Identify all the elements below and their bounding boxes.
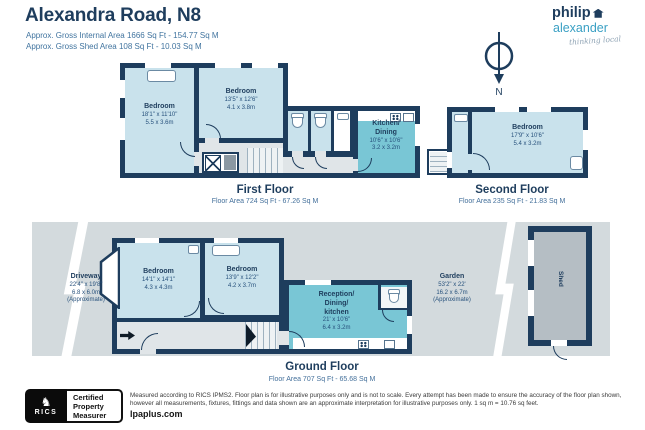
toilet-icon xyxy=(292,117,303,128)
room-label-ground-bedroom1: Bedroom 14'1" x 14'1" 4.3 x 4.3m xyxy=(117,268,200,292)
rics-badge-line: Property xyxy=(73,402,121,411)
subtitle-shed-area: Approx. Gross Shed Area 108 Sq Ft - 10.0… xyxy=(26,42,202,51)
ground-floor-area: Floor Area 707 Sq Ft - 65.68 Sq M xyxy=(227,376,417,383)
window-gap xyxy=(252,63,278,68)
room-name: Dining/ xyxy=(289,300,384,309)
room-dims-imperial: 18'1" x 11'10" xyxy=(125,112,194,120)
hob-icon xyxy=(358,340,369,349)
area-dims-imperial: 53'2" x 22' xyxy=(404,282,500,290)
fixture xyxy=(188,245,199,254)
agency-logo: philip alexander thinking local xyxy=(552,6,642,45)
floorplan-page: Alexandra Road, N8 Approx. Gross Interna… xyxy=(0,0,645,430)
door-gap xyxy=(447,152,452,168)
door-arc xyxy=(553,346,567,360)
window-gap xyxy=(583,130,588,150)
bed-icon xyxy=(212,245,240,256)
room-dims-imperial: 14'1" x 14'1" xyxy=(117,277,200,285)
fixture xyxy=(337,113,349,120)
area-approx: (Approximate) xyxy=(404,297,500,305)
toilet-icon xyxy=(315,117,326,128)
second-floor-area: Floor Area 235 Sq Ft - 21.83 Sq M xyxy=(417,198,607,205)
shower-icon xyxy=(205,155,221,172)
window-gap xyxy=(527,107,551,112)
room-dims-imperial: 21' x 10'6" xyxy=(289,317,384,325)
room-dims-metric: 3.2 x 3.2m xyxy=(356,145,416,153)
garden-label: Garden 53'2" x 22' 16.2 x 6.7m (Approxim… xyxy=(404,273,500,305)
website-link: lpaplus.com xyxy=(130,409,183,419)
garden-door-gap xyxy=(407,316,412,334)
area-approx: (Approximate) xyxy=(38,297,134,305)
house-icon xyxy=(593,9,604,18)
rics-badge-text-box: Certified Property Measurer xyxy=(67,389,123,423)
rics-name: RICS xyxy=(35,409,58,416)
room-dims-imperial: 13'9" x 12'2" xyxy=(205,275,279,283)
room-dims-metric: 5.4 x 3.2m xyxy=(472,141,583,149)
room-dims-imperial: 17'9" x 10'6" xyxy=(472,133,583,141)
rics-lion-icon: ♞ xyxy=(41,396,52,408)
compass-icon: N xyxy=(477,30,521,96)
room-name: Bedroom xyxy=(117,268,200,277)
room-name: kitchen xyxy=(289,309,384,318)
room-name: Dining xyxy=(356,129,416,138)
logo-alexander-text: alexander xyxy=(553,22,642,35)
room-label-bedroom2: Bedroom 13'5" x 12'6" 4.1 x 3.8m xyxy=(199,88,283,112)
room-dims-imperial: 13'5" x 12'6" xyxy=(199,97,283,105)
ground-floor-title: Ground Floor xyxy=(227,361,417,373)
door-gap xyxy=(279,331,289,345)
disclaimer-line1: Measured according to RICS IPMS2. Floor … xyxy=(130,392,640,400)
room-label-second-bedroom: Bedroom 17'9" x 10'6" 5.4 x 3.2m xyxy=(472,124,583,148)
area-name: Garden xyxy=(404,273,500,282)
fixture xyxy=(454,114,468,122)
toilet-icon xyxy=(389,293,399,303)
rics-badge-emblem-box: ♞ RICS xyxy=(25,389,67,423)
room-label-reception: Reception/ Dining/ kitchen 21' x 10'6" 6… xyxy=(289,291,384,333)
rics-badge-line: Measurer xyxy=(73,411,121,420)
window-gap xyxy=(528,240,534,266)
window-gap xyxy=(528,290,534,316)
area-dims-metric: 16.2 x 6.7m xyxy=(404,290,500,298)
room-dims-metric: 5.5 x 3.6m xyxy=(125,120,194,128)
second-floor-title: Second Floor xyxy=(417,184,607,196)
logo-tagline: thinking local xyxy=(552,33,638,48)
room-dims-metric: 4.3 x 4.3m xyxy=(117,285,200,293)
window-gap xyxy=(215,63,241,68)
subtitle-internal-area: Approx. Gross Internal Area 1666 Sq Ft -… xyxy=(26,31,219,40)
window-gap xyxy=(495,107,519,112)
room-label-kitchen-dining: Kitchen/ Dining 10'6" x 10'6" 3.2 x 3.2m xyxy=(356,120,416,153)
rics-badge-line: Certified xyxy=(73,393,121,402)
logo-philip-text: philip xyxy=(552,6,591,21)
sink-icon xyxy=(384,340,395,349)
room-name: Reception/ xyxy=(289,291,384,300)
room-name: Kitchen/ xyxy=(356,120,416,129)
window-gap xyxy=(214,238,238,243)
compass-north-label: N xyxy=(495,87,502,96)
disclaimer-text: Measured according to RICS IPMS2. Floor … xyxy=(130,392,640,408)
first-floor-cupboard-block xyxy=(224,155,236,170)
window-gap xyxy=(145,63,171,68)
first-floor-title: First Floor xyxy=(170,184,360,196)
logo-name-top: philip xyxy=(552,6,642,21)
room-name: Bedroom xyxy=(472,124,583,133)
shed-label: Shed xyxy=(550,264,564,294)
disclaimer-line2: however all measurements, fixtures, fitt… xyxy=(130,400,640,408)
room-dims-metric: 6.4 x 3.2m xyxy=(289,325,384,333)
window-gap xyxy=(135,238,159,243)
window-gap xyxy=(305,280,331,285)
fixture xyxy=(570,156,583,170)
room-dims-metric: 4.1 x 3.8m xyxy=(199,105,283,113)
page-title: Alexandra Road, N8 xyxy=(25,5,201,27)
first-floor-area: Floor Area 724 Sq Ft - 67.26 Sq M xyxy=(170,198,360,205)
bed-icon xyxy=(147,70,176,82)
room-name: Bedroom xyxy=(205,266,279,275)
room-label-ground-bedroom2: Bedroom 13'9" x 12'2" 4.2 x 3.7m xyxy=(205,266,279,290)
room-name: Bedroom xyxy=(199,88,283,97)
room-label-bedroom1: Bedroom 18'1" x 11'10" 5.5 x 3.6m xyxy=(125,103,194,127)
room-dims-metric: 4.2 x 3.7m xyxy=(205,283,279,291)
room-name: Bedroom xyxy=(125,103,194,112)
window-gap xyxy=(120,80,125,98)
stairs-first-floor xyxy=(247,148,283,173)
room-dims-imperial: 10'6" x 10'6" xyxy=(356,138,416,146)
